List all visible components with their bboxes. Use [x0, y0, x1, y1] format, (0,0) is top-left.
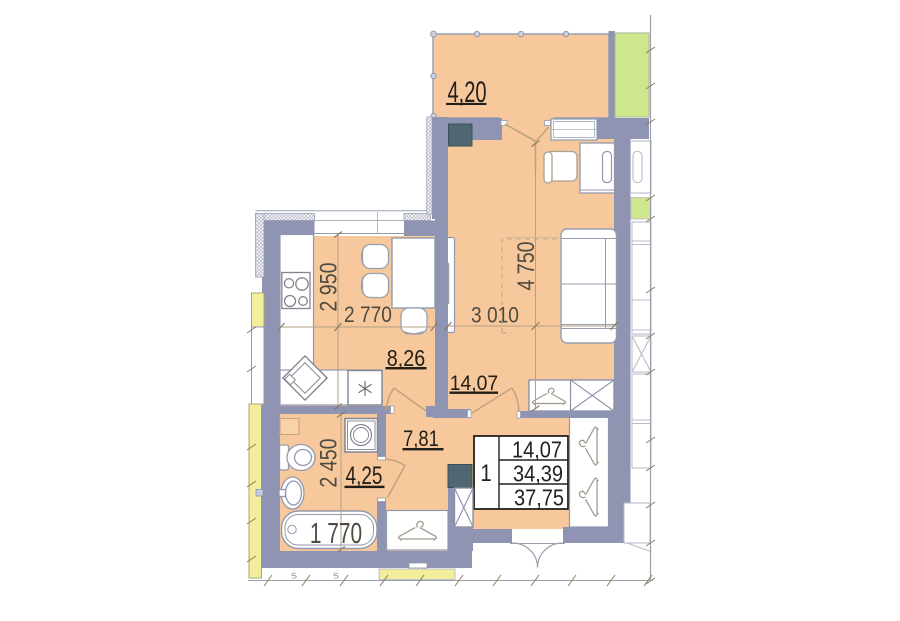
svg-text:1: 1	[480, 459, 491, 486]
svg-text:7,81: 7,81	[403, 428, 439, 452]
svg-text:2 770: 2 770	[344, 303, 392, 328]
svg-text:4,25: 4,25	[346, 461, 383, 489]
svg-text:4 750: 4 750	[512, 241, 539, 290]
svg-text:2 450: 2 450	[315, 438, 342, 487]
svg-text:2 950: 2 950	[315, 262, 342, 311]
svg-text:34,39: 34,39	[513, 460, 563, 487]
svg-text:37,75: 37,75	[514, 484, 564, 511]
svg-text:1 770: 1 770	[310, 518, 362, 550]
svg-text:3 010: 3 010	[471, 303, 519, 328]
svg-text:14,07: 14,07	[512, 436, 562, 463]
